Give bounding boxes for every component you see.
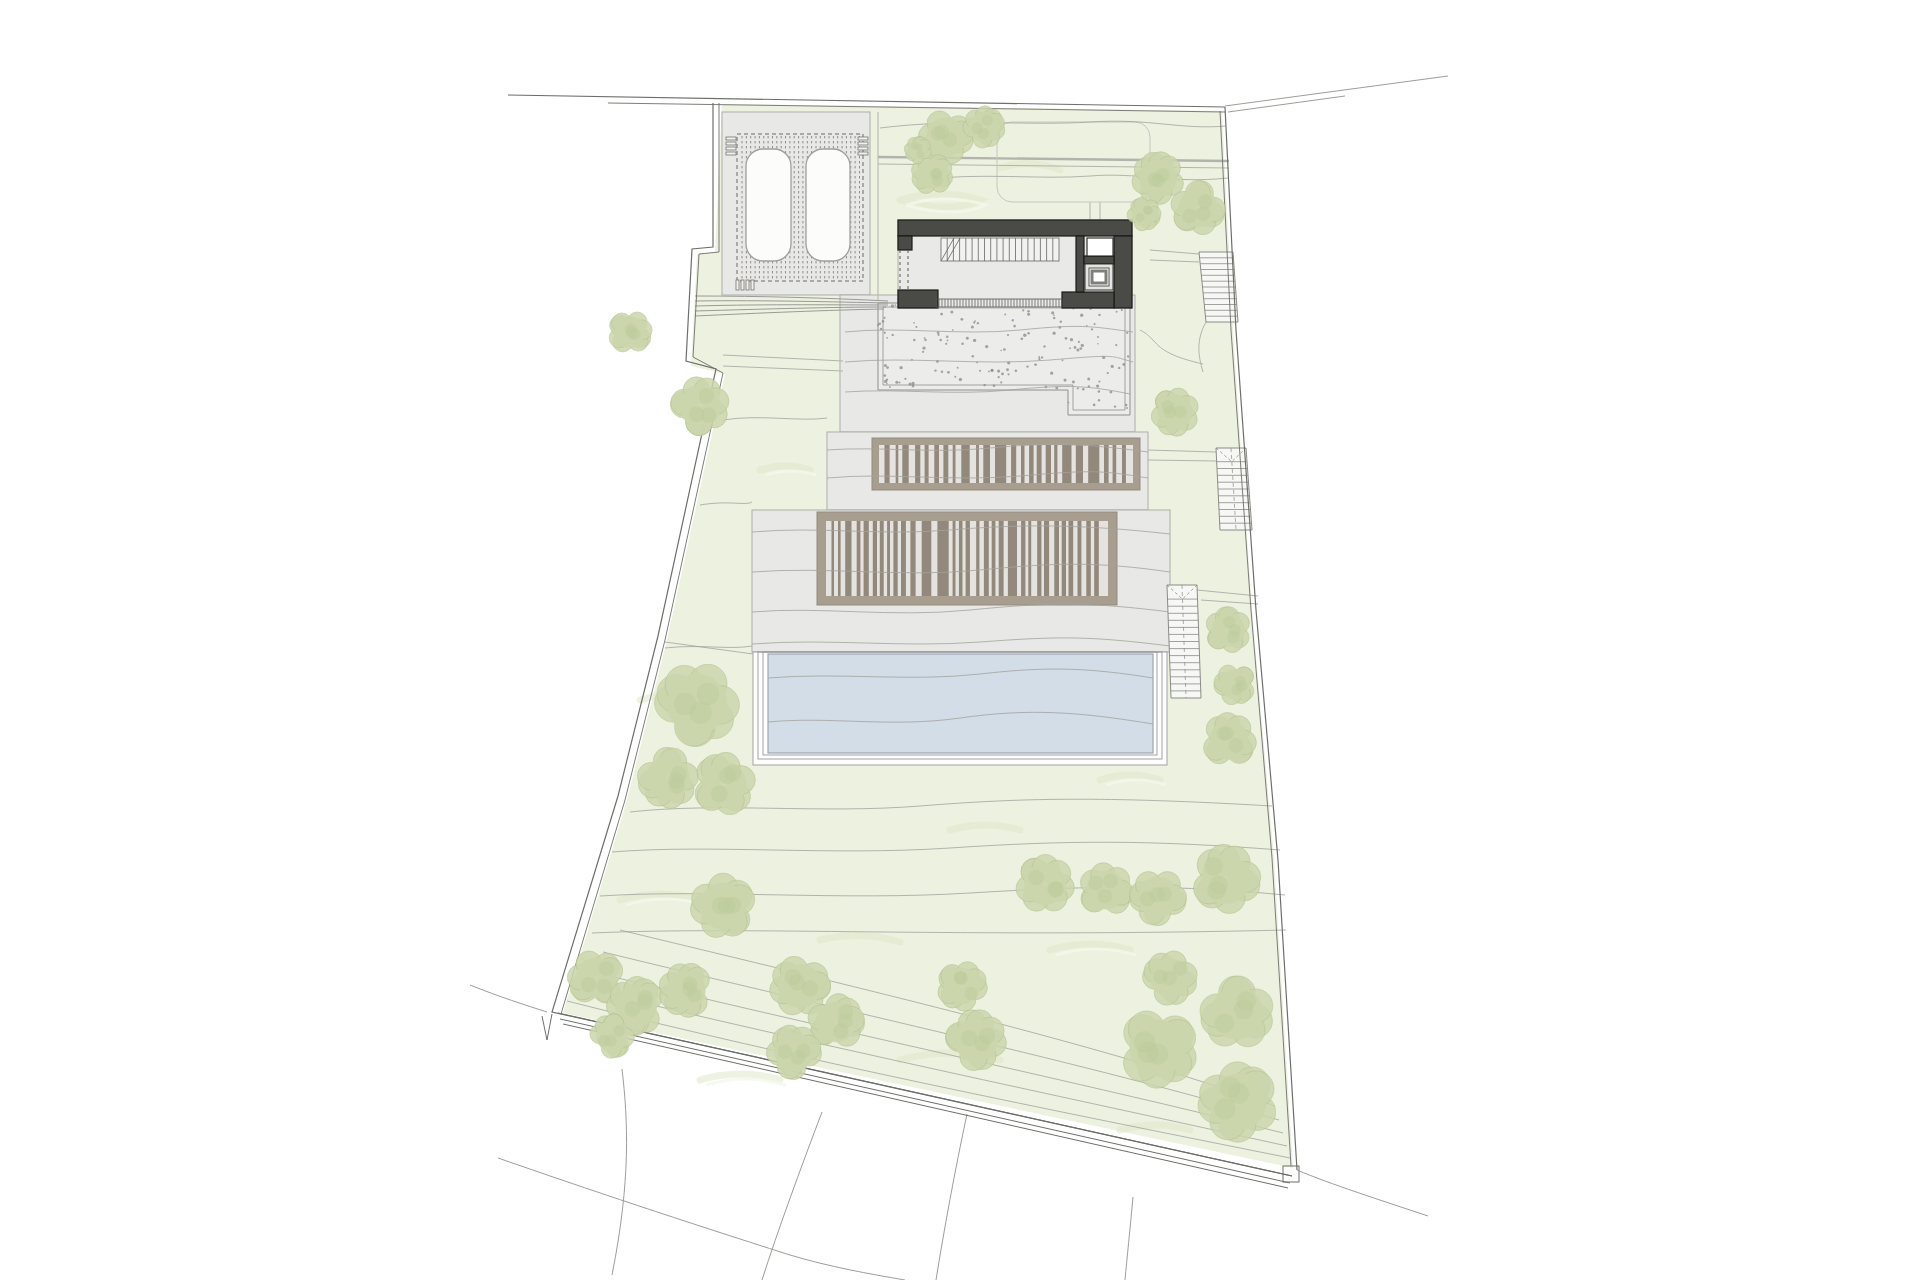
gravel-dot xyxy=(1007,334,1009,336)
louver-slat xyxy=(1037,521,1041,596)
gravel-dot xyxy=(1065,337,1068,340)
comb-top-left-bar xyxy=(726,142,736,145)
tree-crown-center xyxy=(1179,189,1218,228)
gravel-dot xyxy=(1082,388,1085,391)
gravel-dot xyxy=(899,366,902,369)
gravel-dot xyxy=(877,324,879,326)
gravel-dot xyxy=(940,313,943,316)
tree-crown-texture xyxy=(669,778,685,794)
gravel-dot xyxy=(1094,323,1096,325)
lower-louver-roof xyxy=(817,512,1117,605)
dark-wall xyxy=(898,236,912,250)
louver-slat xyxy=(976,521,979,596)
louver-slat xyxy=(1062,445,1071,483)
gravel-dot xyxy=(1063,379,1066,382)
louver-slat xyxy=(1044,521,1049,596)
dark-wall xyxy=(1114,236,1132,308)
gravel-dot xyxy=(1122,363,1125,366)
gravel-dot xyxy=(899,382,901,384)
gravel-dot xyxy=(1001,372,1004,375)
gravel-dot xyxy=(1118,367,1120,369)
tree-crown-texture xyxy=(626,327,638,339)
tree-crown-texture xyxy=(1028,870,1044,886)
parked-car xyxy=(746,149,791,261)
tree xyxy=(1016,854,1074,911)
comb-top-right-bar xyxy=(858,137,868,140)
gravel-dot xyxy=(1078,341,1080,343)
tree-crown-texture xyxy=(1047,882,1063,898)
comb-bottom-left-bar xyxy=(736,280,739,290)
tree-crown-texture xyxy=(699,388,715,404)
site-plan-page xyxy=(0,0,1920,1280)
tree-crown-texture xyxy=(785,969,801,985)
louver-slat xyxy=(1113,445,1117,483)
tree-crown-texture xyxy=(613,1025,625,1037)
gravel-dot xyxy=(998,376,1000,378)
comb-bottom-left-bar xyxy=(746,280,749,290)
tree-crown-texture xyxy=(1088,876,1103,891)
gravel-dot xyxy=(1004,313,1006,315)
tree-crown-texture xyxy=(802,980,818,996)
gravel-dot xyxy=(1038,358,1040,360)
gravel-dot xyxy=(1051,311,1054,314)
grass-texture-stroke xyxy=(760,466,810,470)
tree-crown-texture xyxy=(1174,405,1187,418)
gravel-dot xyxy=(1023,334,1026,337)
gravel-dot xyxy=(1111,365,1114,368)
gravel-dot xyxy=(1072,381,1075,384)
tree-crown-texture xyxy=(581,977,596,992)
gravel-dot xyxy=(959,378,962,381)
gravel-dot xyxy=(891,304,894,307)
louver-slat xyxy=(1021,521,1025,596)
tree-crown-texture xyxy=(599,961,614,976)
garden-stair-pool xyxy=(1167,585,1201,698)
gravel-dot xyxy=(1074,346,1077,349)
tree-crown-texture xyxy=(979,1028,995,1044)
louver-slat xyxy=(1076,445,1083,483)
louver-slat xyxy=(832,521,835,596)
gravel-dot xyxy=(1070,338,1073,341)
gravel-dot xyxy=(1053,314,1055,316)
louver-slat xyxy=(857,521,861,596)
gravel-dot xyxy=(946,335,949,338)
tree-crown-texture xyxy=(1196,206,1211,221)
gravel-dot xyxy=(1026,365,1028,367)
tree-crown-texture xyxy=(964,987,977,1000)
gravel-dot xyxy=(947,340,949,342)
swimming-pool xyxy=(753,652,1167,765)
gravel-dot xyxy=(1022,309,1024,311)
louver-slat xyxy=(864,521,869,596)
gravel-dot xyxy=(924,337,926,339)
gravel-dot xyxy=(941,370,943,372)
tree-crown-texture xyxy=(778,1045,793,1060)
tree-crown-texture xyxy=(1136,213,1145,222)
gravel-dot xyxy=(1062,359,1064,361)
gravel-dot xyxy=(977,322,979,324)
gravel-dot xyxy=(985,345,988,348)
gravel-dot xyxy=(1127,355,1129,357)
louver-slat xyxy=(1062,521,1066,596)
gravel-dot xyxy=(1125,404,1127,406)
louver-slat xyxy=(1104,445,1109,483)
gravel-dot xyxy=(991,369,993,371)
tree-crown-texture xyxy=(711,786,728,803)
gravel-dot xyxy=(884,332,886,334)
stair-well xyxy=(941,238,1059,261)
louver-slat xyxy=(1028,521,1031,596)
comb-top-left-bar xyxy=(726,147,736,150)
comb-top-left-bar xyxy=(726,152,736,155)
gravel-dot xyxy=(1126,332,1128,334)
gravel-dot xyxy=(1097,343,1099,345)
gravel-dot xyxy=(889,386,891,388)
gravel-dot xyxy=(915,326,917,328)
gravel-dot xyxy=(891,334,893,336)
roof-hatch xyxy=(1087,238,1113,256)
gravel-dot xyxy=(904,378,906,380)
parked-car xyxy=(806,149,850,261)
gravel-dot xyxy=(1041,356,1043,358)
gravel-dot xyxy=(1000,381,1002,383)
gravel-dot xyxy=(966,337,969,340)
gravel-dot xyxy=(1098,390,1101,393)
louver-slat xyxy=(1008,521,1017,596)
dark-wall xyxy=(1084,256,1114,264)
louver-slat xyxy=(845,521,851,596)
tree-crown-texture xyxy=(1150,887,1165,902)
gravel-dot xyxy=(957,367,959,369)
gravel-dot xyxy=(1006,368,1009,371)
louver-slat xyxy=(1054,521,1059,596)
gravel-dot xyxy=(1076,348,1079,351)
gravel-dot xyxy=(1053,317,1056,320)
gravel-dot xyxy=(954,376,956,378)
gravel-dot xyxy=(1012,319,1014,321)
gravel-dot xyxy=(993,384,996,387)
louver-slat xyxy=(902,445,908,483)
louver-slat xyxy=(873,521,877,596)
dark-wall xyxy=(898,220,1132,236)
gravel-dot xyxy=(922,351,924,353)
gravel-dot xyxy=(1087,378,1090,381)
gravel-dot xyxy=(961,342,964,345)
louver-slat xyxy=(1078,521,1082,596)
tree-crown-texture xyxy=(1215,1014,1235,1034)
tree-crown-texture xyxy=(917,151,924,158)
gravel-dot xyxy=(911,382,914,385)
comb-top-left-bar xyxy=(726,137,736,140)
gravel-dot xyxy=(1121,309,1123,311)
tree-crown-texture xyxy=(597,979,612,994)
dark-wall xyxy=(1062,292,1114,308)
site-plan-drawing xyxy=(0,0,1920,1280)
tree-crown-texture xyxy=(1144,206,1153,215)
comb-top-right-bar xyxy=(858,142,868,145)
gravel-dot xyxy=(1080,314,1083,317)
tree-crown-texture xyxy=(1162,400,1175,413)
tree-crown-texture xyxy=(961,1030,977,1046)
gravel-dot xyxy=(979,370,981,372)
louver-slat xyxy=(959,521,963,596)
gravel-dot xyxy=(886,337,888,339)
gravel-dot xyxy=(1027,332,1030,335)
louver-slat xyxy=(999,521,1004,596)
tree-crown-center xyxy=(1132,202,1156,226)
tree-crown-texture xyxy=(697,683,719,705)
tree-crown-texture xyxy=(1182,209,1197,224)
gravel-dot xyxy=(971,325,974,328)
gravel-dot xyxy=(1060,320,1062,322)
gravel-dot xyxy=(886,366,889,369)
tree-crown-texture xyxy=(1229,738,1244,753)
louver-slat xyxy=(1021,445,1025,483)
tree-crown-texture xyxy=(972,123,983,134)
tree xyxy=(1124,1011,1197,1088)
louver-slat xyxy=(1037,445,1042,483)
tree-crown-texture xyxy=(712,897,729,914)
gravel-dot xyxy=(947,371,950,374)
gravel-dot xyxy=(1079,347,1082,350)
tree-crown-texture xyxy=(1234,1000,1254,1020)
gravel-dot xyxy=(1091,328,1093,330)
tree-crown-texture xyxy=(1153,970,1168,985)
louver-slat xyxy=(992,521,996,596)
comb-bottom-left-bar xyxy=(741,280,744,290)
gravel-dot xyxy=(988,371,990,373)
gravel-dot xyxy=(1098,399,1100,401)
pool-water xyxy=(768,654,1153,753)
gravel-dot xyxy=(1068,402,1070,404)
roof-stair-structure xyxy=(898,220,1132,308)
tree-crown-texture xyxy=(932,175,943,186)
tree-crown-texture xyxy=(674,693,696,715)
louver-slat xyxy=(910,521,915,596)
louver-slat xyxy=(984,521,989,596)
tree-crown-texture xyxy=(1204,857,1222,875)
tree-crown-texture xyxy=(1148,172,1162,186)
gravel-dot xyxy=(895,304,897,306)
gravel-dot xyxy=(1081,344,1084,347)
gravel-dot xyxy=(1027,313,1030,316)
gravel-dot xyxy=(1034,364,1036,366)
louver-slat xyxy=(1054,445,1057,483)
gravel-dot xyxy=(983,384,985,386)
gravel-dot xyxy=(909,383,912,386)
louver-slat xyxy=(1094,521,1099,596)
garden-stair-middle xyxy=(1216,448,1252,530)
comb-bottom-left-bar xyxy=(751,280,754,290)
gravel-dot xyxy=(937,331,940,334)
gravel-dot xyxy=(913,339,916,342)
tree-crown-texture xyxy=(935,125,950,140)
gravel-dot xyxy=(1007,373,1009,375)
tree-crown-texture xyxy=(1214,1098,1235,1119)
dark-wall xyxy=(1076,236,1084,292)
comb-top-right-bar xyxy=(858,147,868,150)
tree-crown-texture xyxy=(1228,624,1240,636)
louver-slat xyxy=(953,521,956,596)
tree-crown-texture xyxy=(1219,726,1234,741)
gravel-dot xyxy=(1116,311,1118,313)
gravel-dot xyxy=(960,318,963,321)
gravel-dot xyxy=(1038,356,1040,358)
tree-crown-texture xyxy=(605,1035,617,1047)
gravel-dot xyxy=(1098,380,1100,382)
comb-top-right-bar xyxy=(858,152,868,155)
gravel-dot xyxy=(1020,337,1023,340)
gravel-dot xyxy=(934,369,936,371)
gravel-dot xyxy=(884,380,887,383)
gravel-dot xyxy=(973,339,976,342)
louver-slat xyxy=(1069,521,1074,596)
tree-crown-texture xyxy=(791,1050,806,1065)
gravel-dot xyxy=(945,343,947,345)
tree-crown-texture xyxy=(982,115,993,126)
tree-crown-texture xyxy=(1220,1077,1241,1098)
louver-slat xyxy=(885,445,890,483)
gravel-dot xyxy=(997,369,1000,372)
gravel-dot xyxy=(882,320,885,323)
louver-slat xyxy=(838,521,841,596)
gravel-dot xyxy=(1069,347,1071,349)
tree-crown-texture xyxy=(1103,874,1118,889)
gravel-dot xyxy=(1077,387,1079,389)
tree-crown-texture xyxy=(682,982,697,997)
louver-slat xyxy=(1011,445,1016,483)
louver-slat xyxy=(966,521,970,596)
louver-slat xyxy=(937,521,948,596)
louver-slat xyxy=(880,521,884,596)
tree-crown-texture xyxy=(915,144,922,151)
gravel-dot xyxy=(972,355,974,357)
gravel-dot xyxy=(1003,348,1006,351)
gravel-dot xyxy=(886,383,888,385)
tree-crown-texture xyxy=(1147,1044,1168,1065)
tree xyxy=(609,312,652,352)
gravel-dot xyxy=(883,374,886,377)
louver-slat xyxy=(1046,445,1051,483)
tree-crown-texture xyxy=(689,407,705,423)
gravel-dot xyxy=(1097,336,1099,338)
gravel-dot xyxy=(1107,372,1109,374)
louver-slat xyxy=(901,521,906,596)
gravel-dot xyxy=(1115,344,1117,346)
gravel-dot xyxy=(1114,405,1116,407)
louver-slat xyxy=(1086,521,1091,596)
gravel-dot xyxy=(913,322,915,324)
tree-crown-texture xyxy=(1210,876,1228,894)
tree-crown-texture xyxy=(719,767,736,784)
gravel-dot xyxy=(912,385,915,388)
tree-crown-texture xyxy=(954,971,967,984)
louver-slat xyxy=(896,445,899,483)
gravel-dot xyxy=(1015,369,1018,372)
gravel-dot xyxy=(1098,314,1100,316)
louver-slat xyxy=(1122,445,1126,483)
tree-crown-texture xyxy=(1173,961,1188,976)
gravel-dot xyxy=(1013,325,1016,328)
gravel-dot xyxy=(1093,404,1096,407)
louver-slat xyxy=(1029,445,1034,483)
gravel-dot xyxy=(884,364,887,367)
louver-slat xyxy=(922,521,932,596)
gravel-dot xyxy=(952,329,954,331)
gravel-dot xyxy=(1052,332,1055,335)
gravel-dot xyxy=(973,321,975,323)
gravel-dot xyxy=(924,339,926,341)
gravel-dot xyxy=(1050,372,1053,375)
gravel-dot xyxy=(1126,407,1128,409)
gravel-dot xyxy=(1027,310,1030,313)
gravel-dot xyxy=(950,310,953,313)
gravel-dot xyxy=(883,317,885,319)
tree-crown-texture xyxy=(1098,889,1113,904)
tree-crown-texture xyxy=(637,990,653,1006)
tree-crown-texture xyxy=(838,1013,853,1028)
gravel-dot xyxy=(895,381,898,384)
gravel-dot xyxy=(1096,384,1099,387)
gravel-dot xyxy=(1000,350,1002,352)
gravel-dot xyxy=(1043,345,1045,347)
louver-slat xyxy=(1088,445,1099,483)
dark-wall xyxy=(898,290,938,308)
tree-crown-texture xyxy=(1231,684,1242,695)
upper-louver-roof xyxy=(872,438,1140,490)
gravel-dot xyxy=(922,346,925,349)
louver-slat xyxy=(961,445,969,483)
gravel-dot xyxy=(939,339,941,341)
louver-slat xyxy=(887,521,890,596)
